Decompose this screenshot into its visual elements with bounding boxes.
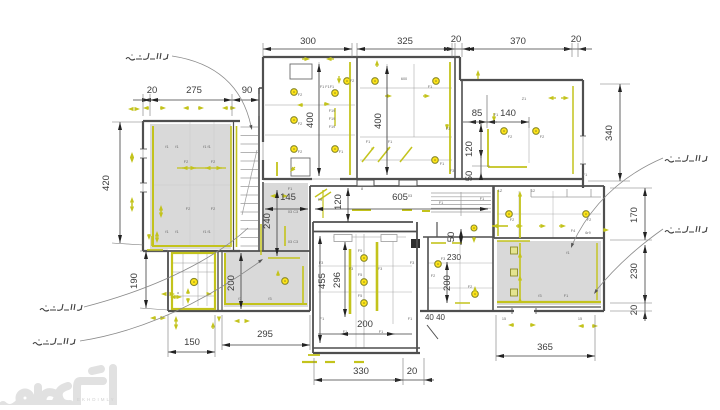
- svg-text:Z1: Z1: [522, 97, 526, 101]
- svg-text:03 C3: 03 C3: [288, 240, 298, 244]
- svg-text:03: 03: [408, 194, 412, 198]
- svg-text:F1: F1: [388, 140, 392, 144]
- svg-text:f3: f3: [238, 297, 241, 301]
- svg-text:230: 230: [447, 252, 461, 262]
- svg-text:F1: F1: [440, 162, 444, 166]
- svg-text:140: 140: [500, 108, 516, 119]
- svg-text:40 40: 40 40: [425, 313, 446, 322]
- svg-text:420: 420: [101, 175, 112, 191]
- svg-text:F1 F1F1: F1 F1F1: [320, 85, 334, 89]
- svg-text:F3: F3: [378, 267, 382, 271]
- svg-text:F5: F5: [358, 294, 362, 298]
- svg-text:F1: F1: [408, 317, 412, 321]
- svg-text:F1: F1: [366, 140, 370, 144]
- svg-text:200: 200: [357, 319, 373, 330]
- svg-text:F2: F2: [184, 160, 188, 164]
- svg-text:F1: F1: [428, 85, 432, 89]
- svg-text:230: 230: [629, 263, 640, 279]
- svg-text:150: 150: [184, 337, 200, 348]
- svg-text:f1: f1: [165, 230, 168, 234]
- svg-text:50: 50: [446, 232, 457, 243]
- svg-text:F2: F2: [540, 135, 544, 139]
- svg-text:15: 15: [502, 317, 506, 321]
- svg-text:f3: f3: [268, 297, 271, 301]
- svg-text:F3: F3: [450, 169, 454, 173]
- svg-text:f1: f1: [175, 145, 178, 149]
- svg-text:F3: F3: [410, 261, 414, 265]
- svg-text:03 C3: 03 C3: [288, 210, 298, 214]
- svg-text:330: 330: [353, 366, 369, 377]
- svg-text:F1: F1: [564, 294, 568, 298]
- svg-text:275: 275: [186, 85, 202, 96]
- svg-text:600: 600: [401, 77, 407, 81]
- svg-text:145: 145: [280, 192, 296, 203]
- svg-text:F2: F2: [298, 93, 302, 97]
- svg-text:F19: F19: [329, 117, 336, 121]
- svg-text:F5: F5: [358, 273, 362, 277]
- svg-text:F2: F2: [298, 150, 302, 154]
- svg-text:F2: F2: [508, 135, 512, 139]
- svg-text:20: 20: [407, 366, 418, 377]
- svg-text:8: 8: [361, 187, 363, 191]
- svg-text:F1: F1: [339, 150, 343, 154]
- svg-text:F2: F2: [298, 122, 302, 126]
- svg-text:370: 370: [510, 36, 526, 47]
- svg-text:295: 295: [257, 329, 273, 340]
- svg-text:90: 90: [242, 85, 253, 96]
- svg-text:170: 170: [629, 207, 640, 223]
- svg-text:F1: F1: [480, 197, 484, 201]
- svg-text:15: 15: [578, 317, 582, 321]
- svg-text:F2: F2: [211, 160, 215, 164]
- svg-text:F19: F19: [329, 125, 336, 129]
- svg-text:F1: F1: [379, 330, 383, 334]
- svg-text:F2: F2: [186, 207, 190, 211]
- svg-text:EKHDIMLY: EKHDIMLY: [77, 397, 116, 402]
- svg-text:F9: F9: [318, 198, 322, 202]
- svg-text:F1: F1: [320, 317, 324, 321]
- svg-text:F1: F1: [343, 330, 347, 334]
- svg-text:400: 400: [373, 113, 384, 129]
- svg-text:F1: F1: [288, 187, 292, 191]
- svg-text:120: 120: [333, 194, 344, 210]
- svg-text:f1: f1: [566, 251, 569, 255]
- svg-text:F1: F1: [439, 201, 443, 205]
- svg-text:F1: F1: [583, 173, 587, 177]
- svg-text:1Z: 1Z: [498, 189, 503, 193]
- svg-text:F4: F4: [571, 229, 575, 233]
- svg-text:400: 400: [305, 112, 316, 128]
- svg-text:455: 455: [317, 273, 328, 289]
- svg-text:6r9: 6r9: [585, 231, 591, 235]
- svg-text:F1: F1: [494, 113, 498, 117]
- svg-text:190: 190: [129, 273, 140, 289]
- svg-text:F2: F2: [350, 79, 354, 83]
- svg-text:296: 296: [332, 272, 343, 288]
- svg-text:f3: f3: [538, 294, 541, 298]
- svg-text:F3: F3: [349, 267, 353, 271]
- svg-text:325: 325: [397, 36, 413, 47]
- svg-text:340: 340: [604, 125, 615, 141]
- svg-text:85: 85: [472, 108, 483, 119]
- svg-text:120: 120: [464, 141, 475, 157]
- svg-text:F19: F19: [329, 109, 336, 113]
- svg-text:365: 365: [537, 342, 553, 353]
- svg-text:300: 300: [300, 36, 316, 47]
- svg-text:F3: F3: [441, 257, 445, 261]
- svg-text:12: 12: [531, 189, 535, 193]
- svg-text:F5: F5: [358, 249, 362, 253]
- svg-text:f1 f1: f1 f1: [203, 230, 210, 234]
- svg-text:f1 f1: f1 f1: [203, 145, 210, 149]
- svg-text:F2: F2: [211, 207, 215, 211]
- svg-text:20: 20: [147, 85, 158, 96]
- svg-text:F2: F2: [510, 218, 514, 222]
- svg-text:F2: F2: [468, 285, 472, 289]
- svg-text:50: 50: [464, 171, 475, 182]
- svg-text:f1: f1: [175, 230, 178, 234]
- svg-text:20: 20: [629, 305, 640, 316]
- svg-text:605: 605: [392, 192, 408, 203]
- svg-text:o: o: [177, 291, 179, 295]
- svg-text:F3: F3: [446, 127, 450, 131]
- svg-text:F2: F2: [431, 274, 435, 278]
- svg-text:240: 240: [262, 213, 273, 229]
- svg-text:f1: f1: [165, 145, 168, 149]
- svg-text:F3: F3: [319, 261, 323, 265]
- svg-text:F2: F2: [587, 218, 591, 222]
- svg-text:200: 200: [442, 275, 453, 291]
